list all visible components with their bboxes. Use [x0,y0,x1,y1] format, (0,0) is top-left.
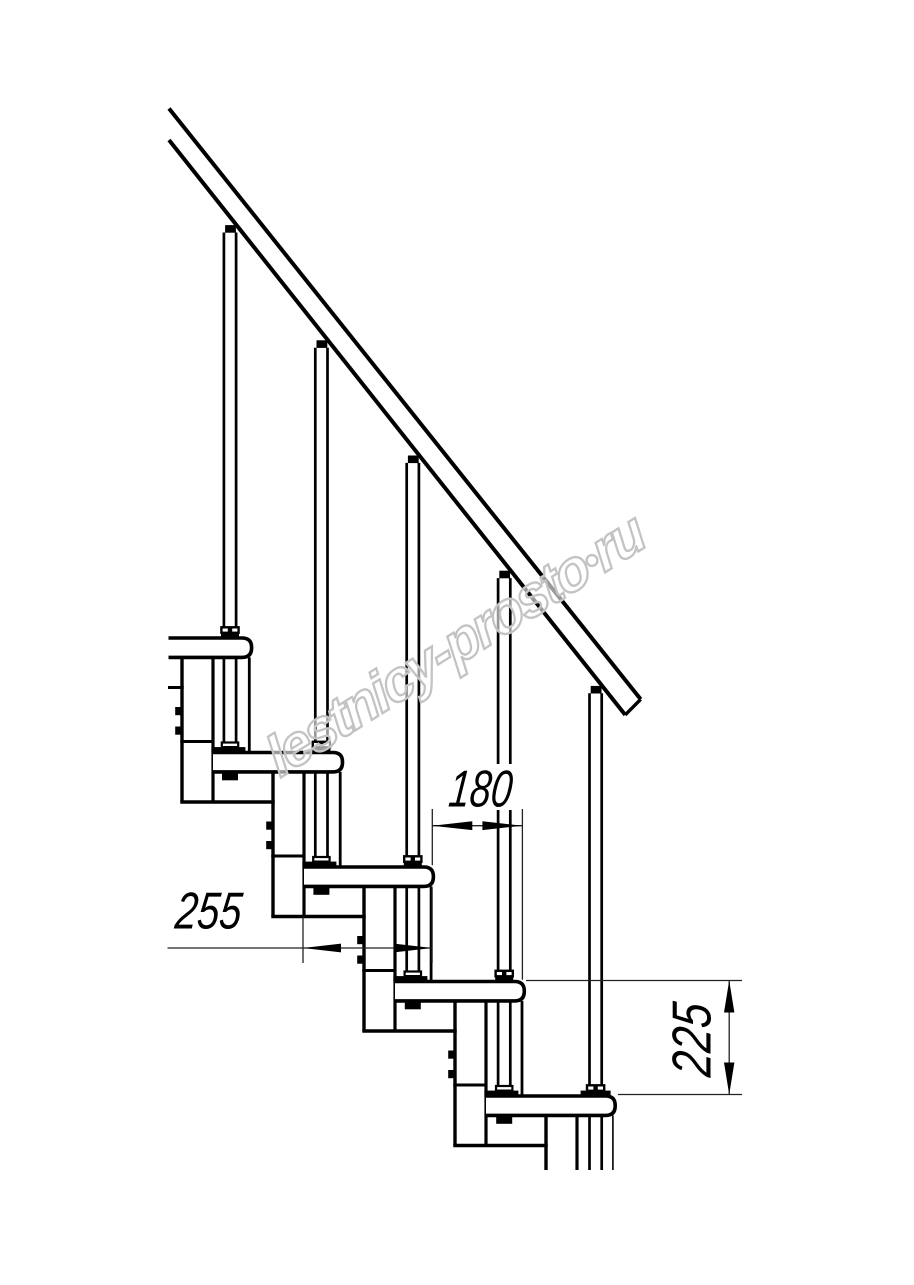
svg-text:225: 225 [661,999,723,1080]
svg-text:180: 180 [446,761,515,819]
svg-text:255: 255 [172,883,246,941]
